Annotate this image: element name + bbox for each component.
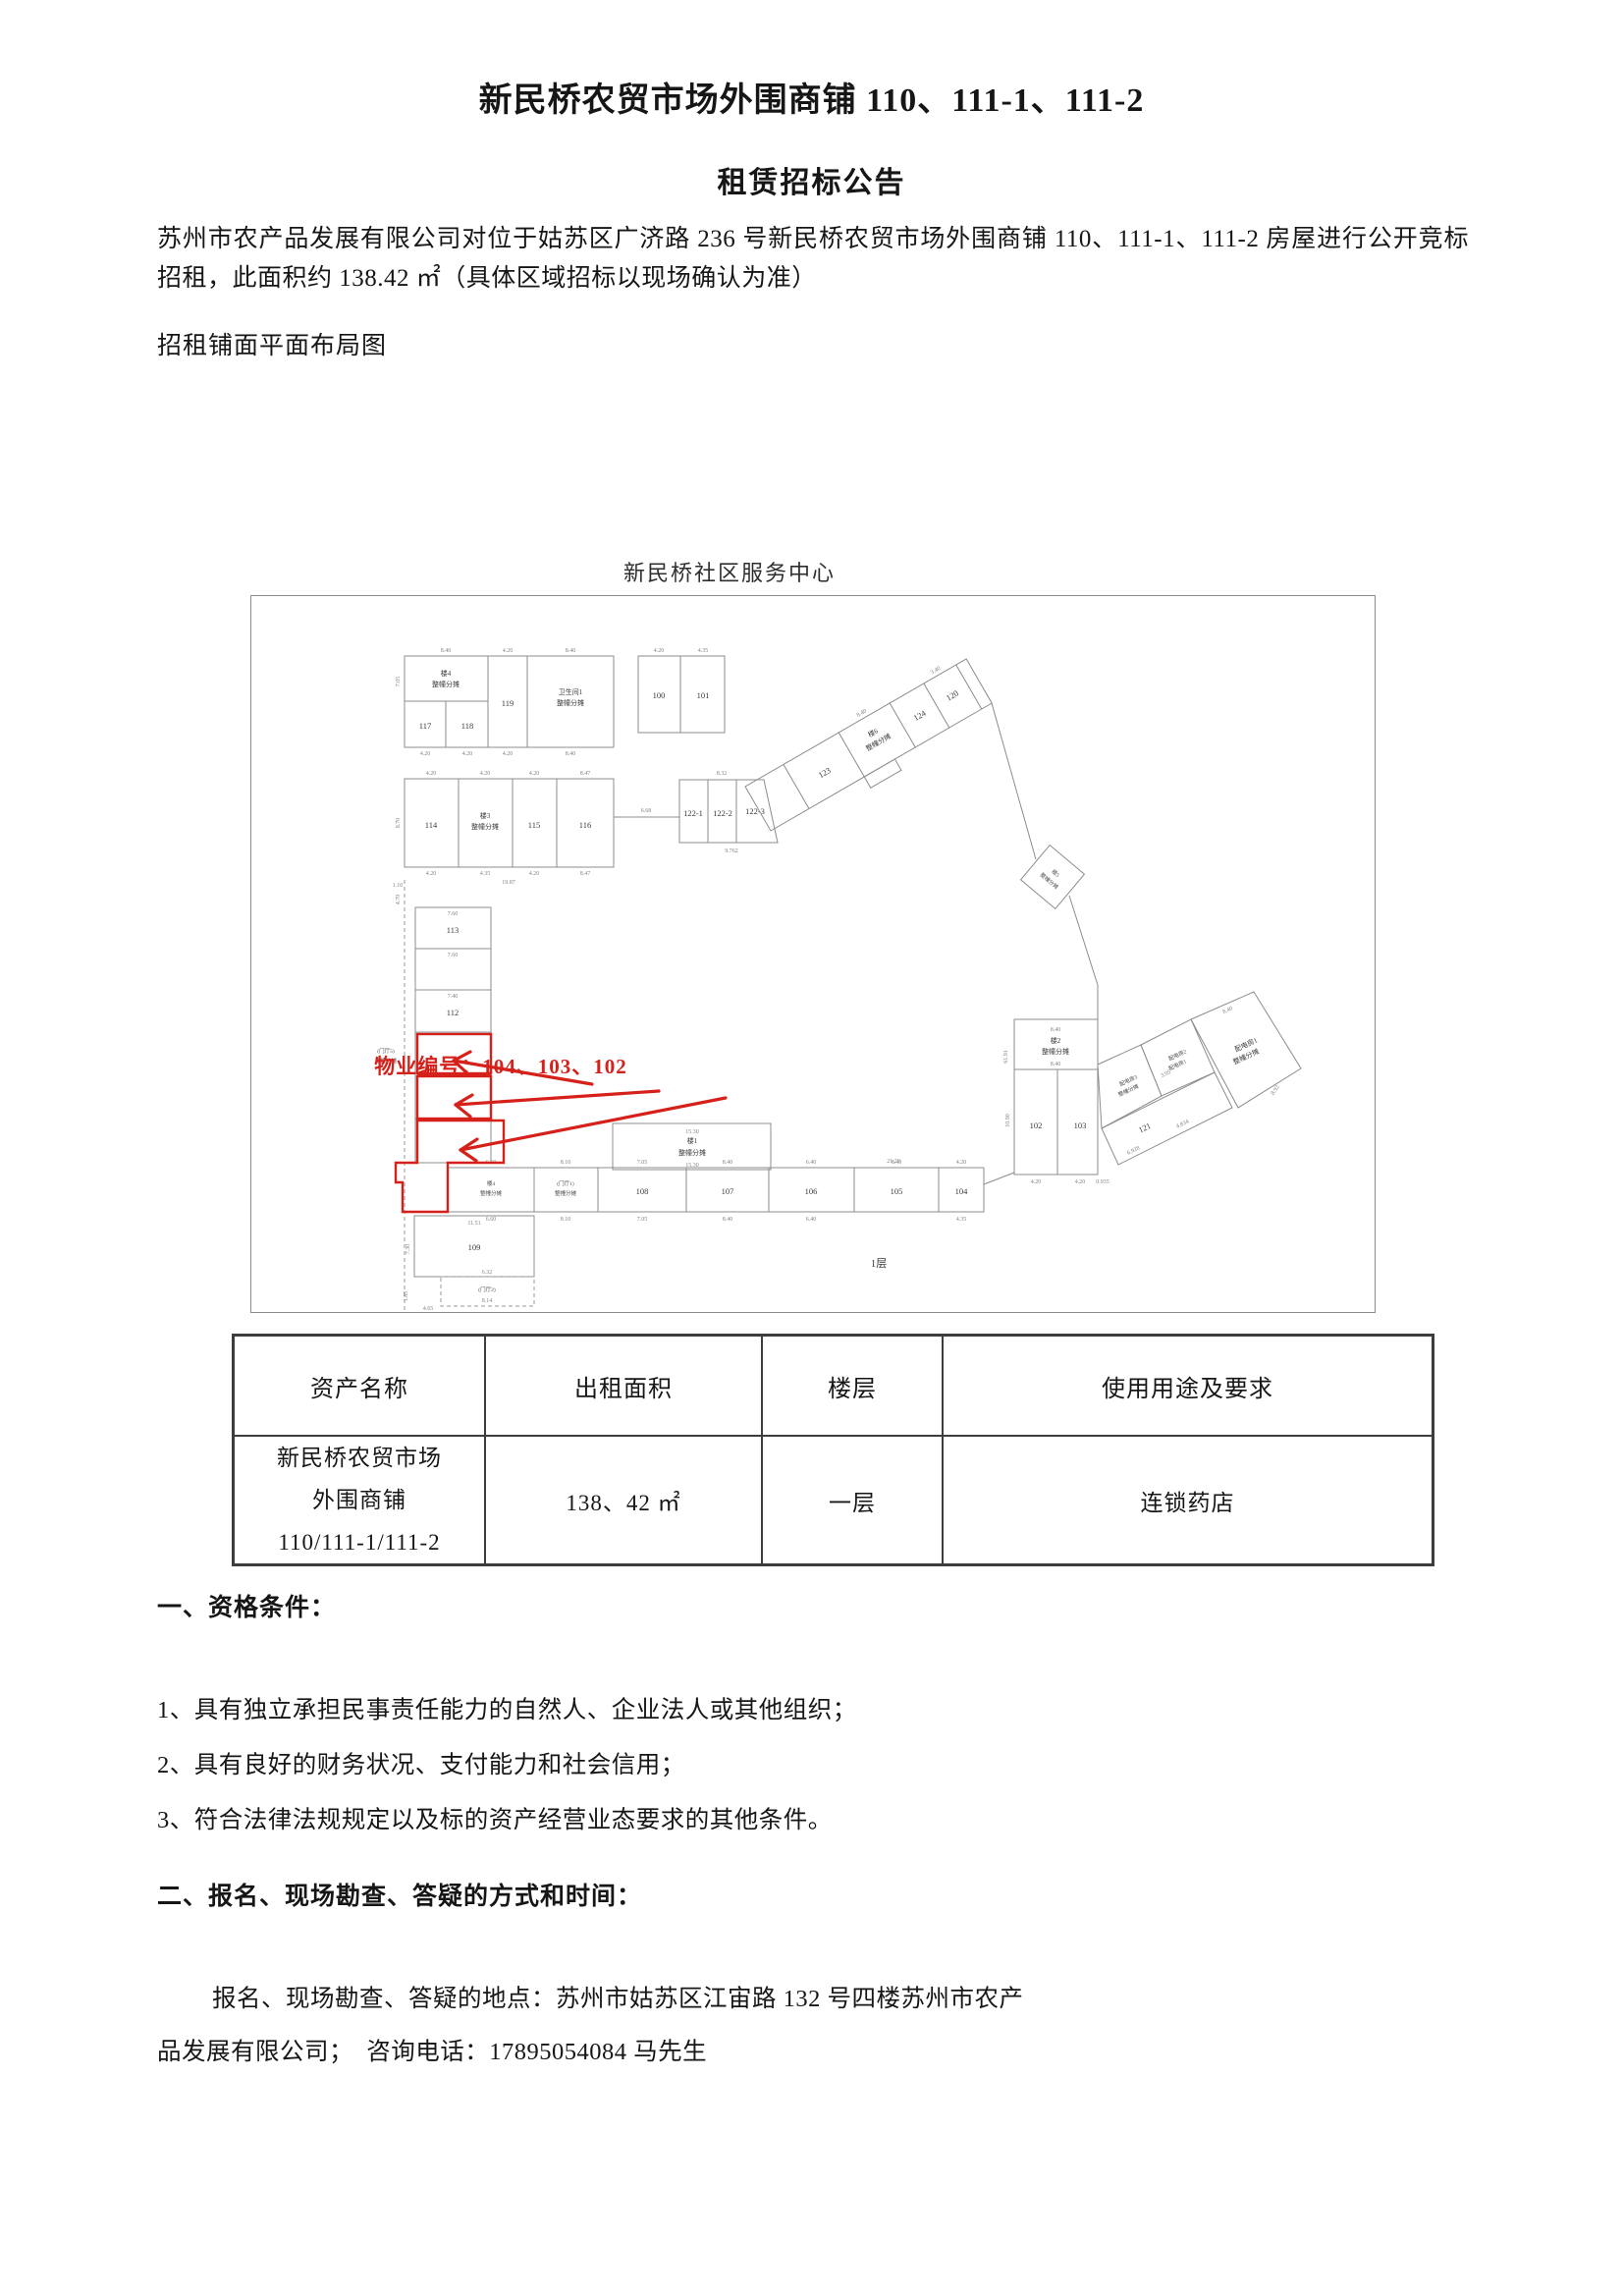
property-id-annotation: 物业编号：104、103、102	[374, 1055, 627, 1078]
dim-label: 4.20	[426, 871, 437, 877]
dim-label: 21.20	[887, 1159, 900, 1165]
dim-label: 4.35	[698, 648, 709, 654]
dim-label: 7.05	[637, 1217, 648, 1223]
room-label: 102	[1030, 1121, 1043, 1130]
room-label: 107	[722, 1186, 734, 1196]
room-label: 122-2	[713, 808, 732, 818]
room-label: (门厅1)	[557, 1179, 574, 1187]
document-page: 新民桥农贸市场外围商铺 110、111-1、111-2 租赁招标公告 苏州市农产…	[0, 0, 1623, 2296]
asset-name-line: 110/111-1/111-2	[235, 1521, 484, 1563]
asset-table: 资产名称 出租面积 楼层 使用用途及要求 新民桥农贸市场 外围商铺 110/11…	[232, 1334, 1434, 1566]
dim-label: 8.70	[396, 818, 402, 829]
dim-label: 4.35	[480, 871, 491, 877]
dim-label: 4.834	[1175, 1120, 1190, 1130]
plan-caption: 招租铺面平面布局图	[157, 326, 387, 361]
room-label: 118	[461, 721, 473, 731]
room-label: 楼4	[441, 669, 452, 678]
doc-subtitle: 租赁招标公告	[0, 158, 1623, 201]
room-label: 整幢分摊	[1042, 1047, 1069, 1056]
contact-line-2: 品发展有限公司； 咨询电话：17895054084 马先生	[157, 2033, 1473, 2067]
dim-label: 6.40	[806, 1160, 817, 1166]
room-label: 103	[1074, 1121, 1087, 1130]
dim-label: 8.47	[580, 771, 591, 777]
site-boundary-line	[992, 703, 1036, 859]
dim-label: 6.68	[641, 808, 652, 814]
section1-heading: 一、资格条件：	[157, 1588, 336, 1623]
dim-label: 6.32	[482, 1270, 493, 1276]
room-label: 整幢分摊	[557, 698, 584, 707]
dim-label: 8.14	[482, 1298, 493, 1304]
room-label: 整幢分摊	[471, 822, 499, 831]
room-label: 100	[653, 690, 666, 700]
room-label: 114	[425, 820, 438, 830]
dim-label: 7.05	[637, 1160, 648, 1166]
dim-label: 6.40	[806, 1217, 817, 1223]
intro-paragraph: 苏州市农产品发展有限公司对位于姑苏区广济路 236 号新民桥农贸市场外围商铺 1…	[157, 220, 1469, 299]
contact-line-1: 报名、现场勘查、答疑的地点：苏州市姑苏区江宙路 132 号四楼苏州市农产	[157, 1980, 1473, 2014]
dim-label: 8.47	[580, 871, 591, 877]
room-label: 113	[447, 925, 459, 935]
dim-label: 8.40	[1051, 1027, 1061, 1033]
dim-label: 7.05	[396, 677, 402, 687]
room-label: 124	[912, 708, 929, 723]
dim-label: 0.935	[1096, 1179, 1109, 1185]
room-label: 整幢分摊	[432, 680, 460, 688]
dim-label: 4.20	[529, 771, 540, 777]
floor-plan-drawing: 楼4 整幢分摊 117 118 119 卫生间1 整幢分摊 8.40 4.20 …	[250, 595, 1376, 1313]
dim-label: 8.40	[566, 751, 576, 757]
room-label: 卫生间1	[559, 687, 583, 696]
block-bottomleft: 109 11.51 7.30 (门厅2) 6.32 8.14 1.85 4.65	[404, 1216, 534, 1312]
room-label: 122-1	[683, 808, 703, 818]
room-label: 楼3	[480, 811, 491, 820]
dim-label: 8.40	[1051, 1062, 1061, 1067]
dim-label: 8.40	[566, 648, 576, 654]
dim-label: 8.32	[717, 771, 728, 777]
dim-label: 7.40	[448, 994, 459, 1000]
dim-label: 4.20	[529, 871, 540, 877]
room-label: 105	[891, 1186, 903, 1196]
dim-label: 6.60	[486, 1217, 497, 1223]
cell-usage: 连锁药店	[943, 1436, 1434, 1565]
dim-label: 4.20	[1075, 1179, 1086, 1185]
dim-label: 4.20	[420, 751, 431, 757]
asset-name-line: 新民桥农贸市场	[235, 1437, 484, 1479]
dim-label: 4.35	[956, 1217, 967, 1223]
room-label: 117	[419, 721, 431, 731]
dim-label: 10.90	[1005, 1114, 1011, 1127]
room-label: (门厅2)	[478, 1285, 496, 1293]
doc-title: 新民桥农贸市场外围商铺 110、111-1、111-2	[0, 73, 1623, 121]
dim-label: 4.20	[654, 648, 665, 654]
row-bottom: 楼4 整幢分摊 (门厅1) 整幢分摊 108 107 106 105 104 6…	[448, 1159, 1014, 1223]
dim-label: 4.65	[423, 1306, 434, 1312]
floor-level-label: 1层	[871, 1257, 888, 1270]
target-shop-3	[396, 1121, 504, 1212]
dim-label: 8.40	[723, 1217, 733, 1223]
dim-label: 7.60	[448, 911, 459, 917]
room-label: (门厅5)	[377, 1047, 395, 1055]
col-header-area: 出租面积	[485, 1336, 762, 1437]
dim-label: 61.91	[1003, 1050, 1009, 1064]
room-label: 109	[468, 1242, 481, 1252]
dim-label: 1.85	[404, 1291, 409, 1302]
dim-label: 8.40	[723, 1160, 733, 1166]
dim-label: 15.30	[685, 1163, 699, 1169]
room-label: 123	[817, 765, 833, 780]
dim-label: 4.20	[503, 751, 514, 757]
room-label: 119	[502, 698, 514, 708]
target-shop-2	[417, 1076, 491, 1119]
dim-label: 4.70	[396, 895, 402, 905]
block-mid-left: 114 楼3 整幢分摊 115 116 4.20 4.20 4.20 8.47 …	[396, 771, 614, 886]
room-label: 106	[805, 1186, 818, 1196]
room-label: 楼1	[687, 1136, 698, 1145]
wing-northeast: 123 楼6 整幢分摊 124 120 3.40 8.40	[741, 652, 999, 842]
dim-label: 19.87	[502, 880, 515, 886]
dim-label: 8.40	[1222, 1006, 1234, 1015]
room-label: 104	[955, 1186, 969, 1196]
block-right: 楼2 整幢分摊 102 103 8.40 8.40 10.90 61.91 4.…	[1003, 1019, 1109, 1185]
room-label: 101	[697, 690, 710, 700]
room-label: 116	[579, 820, 591, 830]
block-utility: 配电房3 整幢分摊 配电房2 配电房1 配电房1 整幢分摊 121 3.95 4…	[1098, 992, 1301, 1165]
dim-label: 9.762	[725, 848, 738, 854]
dim-label: 15.30	[685, 1129, 699, 1135]
cell-asset-name: 新民桥农贸市场 外围商铺 110/111-1/111-2	[234, 1436, 486, 1565]
floor-plan-title: 新民桥社区服务中心	[167, 556, 1292, 587]
col-header-floor: 楼层	[762, 1336, 943, 1437]
room-label: 整幢分摊	[555, 1189, 577, 1197]
dim-label: 4.20	[480, 771, 491, 777]
dim-label: 8.10	[561, 1160, 571, 1166]
dim-label: 8.10	[561, 1217, 571, 1223]
plan-border	[251, 596, 1376, 1313]
dim-label: 1.10	[393, 883, 404, 889]
col-header-usage: 使用用途及要求	[943, 1336, 1434, 1437]
dim-label: 7.30	[406, 1244, 411, 1255]
qualification-item: 2、具有良好的财务状况、支付能力和社会信用；	[157, 1746, 685, 1780]
room-label: 楼2	[1051, 1036, 1061, 1045]
col-header-asset: 资产名称	[234, 1336, 486, 1437]
room-label: 整幢分摊	[678, 1148, 706, 1157]
table-data-row: 新民桥农贸市场 外围商铺 110/111-1/111-2 138、42 ㎡ 一层…	[234, 1436, 1434, 1565]
section2-heading: 二、报名、现场勘查、答疑的方式和时间：	[157, 1877, 642, 1912]
dim-label: 4.20	[503, 648, 514, 654]
room-label: 108	[636, 1186, 649, 1196]
dim-label: 4.20	[426, 771, 437, 777]
block-diamond: 楼5 整幢分摊	[1021, 846, 1085, 909]
room-label: 115	[528, 820, 540, 830]
qualification-item: 3、符合法律法规规定以及标的资产经营业态要求的其他条件。	[157, 1801, 833, 1835]
dim-label: 4.20	[1031, 1179, 1042, 1185]
annotation-arrow-2	[456, 1091, 659, 1105]
room-label: 112	[447, 1008, 459, 1017]
dim-label: 8.40	[441, 648, 452, 654]
block-topleft: 楼4 整幢分摊 117 118 119 卫生间1 整幢分摊 8.40 4.20 …	[396, 648, 614, 757]
room-label: 楼6	[866, 726, 880, 738]
dim-label: 11.51	[467, 1221, 480, 1227]
room-label: 121	[1137, 1121, 1153, 1134]
room-label: 整幢分摊	[480, 1189, 503, 1197]
site-boundary-line	[1069, 896, 1098, 985]
dim-label: 7.60	[448, 953, 459, 958]
cell-floor: 一层	[762, 1436, 943, 1565]
dim-label: 4.20	[956, 1160, 967, 1166]
block-top-mid: 100 101 4.20 4.35	[638, 648, 725, 733]
cell-area: 138、42 ㎡	[485, 1436, 762, 1565]
qualification-item: 1、具有独立承担民事责任能力的自然人、企业法人或其他组织；	[157, 1691, 857, 1725]
table-header-row: 资产名称 出租面积 楼层 使用用途及要求	[234, 1336, 1434, 1437]
room-label: 120	[945, 688, 960, 703]
room-label: 楼4	[487, 1179, 496, 1187]
asset-name-line: 外围商铺	[235, 1479, 484, 1521]
room-label: 楼5	[1050, 867, 1061, 879]
block-122: 122-1 122-2 122-3 8.32 9.762	[679, 771, 778, 854]
floor-plan-figure: 新民桥社区服务中心 楼4 整幢分摊 117 118 119 卫生间1 整幢分摊 …	[250, 556, 1376, 1313]
dim-label: 4.20	[462, 751, 473, 757]
